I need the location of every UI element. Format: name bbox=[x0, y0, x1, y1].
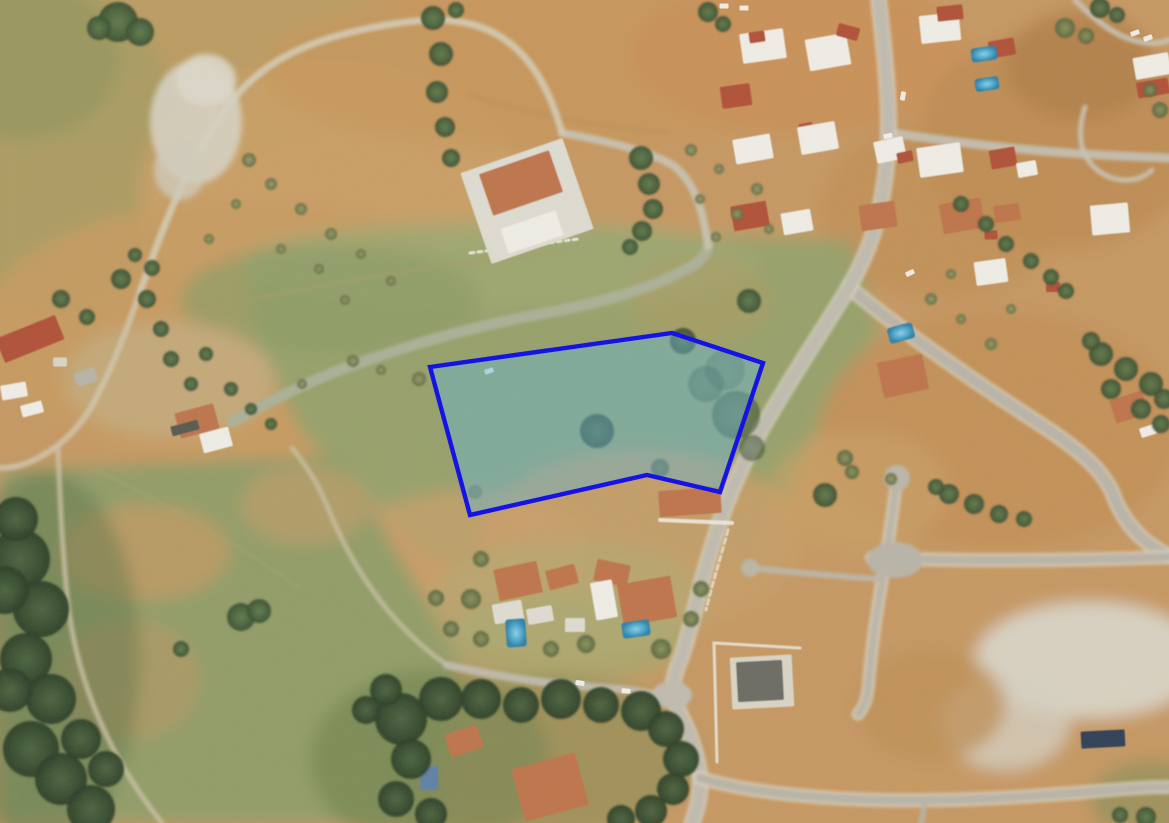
tree bbox=[751, 183, 763, 195]
tree bbox=[295, 203, 307, 215]
tree bbox=[297, 379, 307, 389]
tree bbox=[978, 216, 994, 232]
tree bbox=[52, 290, 70, 308]
tree bbox=[473, 631, 489, 647]
tree bbox=[1109, 7, 1125, 23]
tree bbox=[1078, 28, 1094, 44]
tree bbox=[347, 355, 359, 367]
tree bbox=[632, 221, 652, 241]
tree bbox=[429, 42, 453, 66]
tree bbox=[138, 290, 156, 308]
tree bbox=[276, 244, 286, 254]
tree bbox=[543, 641, 559, 657]
tree bbox=[695, 194, 705, 204]
tree bbox=[813, 483, 837, 507]
building bbox=[53, 358, 67, 367]
tree bbox=[376, 365, 386, 375]
tree bbox=[928, 479, 944, 495]
tree bbox=[184, 377, 198, 391]
vehicle bbox=[740, 6, 749, 11]
tree bbox=[985, 338, 997, 350]
tree bbox=[144, 260, 160, 276]
road-turning-circle bbox=[741, 559, 759, 577]
tree bbox=[340, 295, 350, 305]
tree bbox=[715, 16, 731, 32]
tree bbox=[683, 611, 699, 627]
building bbox=[565, 618, 585, 632]
tree bbox=[1043, 269, 1059, 285]
building bbox=[916, 142, 964, 178]
tree bbox=[426, 81, 448, 103]
tree bbox=[231, 199, 241, 209]
tree bbox=[199, 347, 213, 361]
layer-parcel-overlay bbox=[430, 333, 763, 515]
tree bbox=[964, 494, 984, 514]
tree bbox=[693, 581, 709, 597]
tree bbox=[204, 234, 214, 244]
tree bbox=[685, 144, 697, 156]
tree bbox=[412, 372, 426, 386]
tree bbox=[352, 696, 380, 724]
swimming-pool bbox=[505, 618, 527, 647]
tree bbox=[622, 239, 638, 255]
tree bbox=[638, 173, 660, 195]
tree bbox=[503, 687, 539, 723]
building bbox=[720, 83, 753, 109]
tree bbox=[737, 289, 761, 313]
tree bbox=[583, 687, 619, 723]
tree bbox=[173, 641, 189, 657]
rubble-patch bbox=[154, 140, 206, 200]
rubble-patch bbox=[176, 54, 236, 106]
tree bbox=[541, 679, 581, 719]
aerial-imagery bbox=[0, 0, 1169, 823]
tree bbox=[448, 2, 464, 18]
tree bbox=[87, 16, 111, 40]
tree bbox=[428, 590, 444, 606]
field-patch bbox=[240, 465, 370, 545]
tree bbox=[386, 276, 396, 286]
tree bbox=[925, 293, 937, 305]
tree bbox=[356, 249, 366, 259]
tree bbox=[990, 505, 1008, 523]
tree bbox=[247, 599, 271, 623]
tree bbox=[845, 465, 859, 479]
tree bbox=[224, 382, 238, 396]
tree bbox=[314, 264, 324, 274]
building bbox=[858, 201, 897, 232]
tree bbox=[956, 314, 966, 324]
tree bbox=[1114, 357, 1138, 381]
tree bbox=[461, 679, 501, 719]
tree bbox=[61, 719, 101, 759]
tree bbox=[1006, 304, 1016, 314]
tree bbox=[421, 6, 445, 30]
tree bbox=[325, 228, 337, 240]
tree bbox=[837, 450, 853, 466]
field-patch bbox=[1005, 10, 1155, 120]
tree bbox=[163, 351, 179, 367]
tree bbox=[26, 674, 76, 724]
tree bbox=[128, 248, 142, 262]
tree bbox=[245, 403, 257, 415]
tree bbox=[714, 164, 724, 174]
tree bbox=[265, 178, 277, 190]
tree bbox=[111, 269, 131, 289]
tree bbox=[265, 418, 277, 430]
tree bbox=[1112, 807, 1128, 823]
tree bbox=[953, 196, 969, 212]
tree bbox=[946, 269, 956, 279]
tree bbox=[1016, 511, 1032, 527]
tree bbox=[1082, 332, 1100, 350]
vehicle bbox=[621, 688, 630, 694]
tree bbox=[885, 473, 897, 485]
tree bbox=[473, 551, 489, 567]
tree bbox=[442, 149, 460, 167]
tree bbox=[629, 146, 653, 170]
tree bbox=[153, 321, 169, 337]
building bbox=[936, 4, 963, 22]
tree bbox=[242, 153, 256, 167]
tree bbox=[1131, 399, 1151, 419]
building bbox=[736, 660, 784, 702]
tree bbox=[1143, 83, 1157, 97]
parcel-boundary[interactable] bbox=[430, 333, 763, 515]
tree bbox=[643, 199, 663, 219]
tree bbox=[79, 309, 95, 325]
building bbox=[1081, 729, 1126, 748]
tree bbox=[1055, 18, 1075, 38]
building bbox=[993, 203, 1021, 223]
building bbox=[973, 258, 1008, 286]
vehicle bbox=[720, 4, 729, 9]
tree bbox=[577, 635, 595, 653]
field-patch bbox=[770, 430, 950, 550]
tree bbox=[731, 208, 743, 220]
tree bbox=[711, 232, 721, 242]
road-junction bbox=[867, 542, 923, 578]
tree bbox=[1152, 102, 1168, 118]
tree bbox=[88, 751, 124, 787]
field-patch bbox=[855, 650, 1005, 760]
tree bbox=[378, 781, 414, 817]
tree bbox=[739, 435, 765, 461]
tree bbox=[698, 2, 718, 22]
tree bbox=[1058, 283, 1074, 299]
tree bbox=[1023, 253, 1039, 269]
tree bbox=[651, 639, 671, 659]
satellite-map-view[interactable] bbox=[0, 0, 1169, 823]
tree bbox=[126, 18, 154, 46]
tree bbox=[391, 739, 431, 779]
building bbox=[1090, 202, 1130, 235]
tree bbox=[435, 117, 455, 137]
tree bbox=[419, 677, 463, 721]
tree bbox=[461, 589, 481, 609]
tree bbox=[663, 741, 699, 777]
tree bbox=[764, 224, 774, 234]
tree bbox=[1101, 379, 1121, 399]
tree bbox=[998, 236, 1014, 252]
building bbox=[748, 30, 765, 43]
tree bbox=[443, 621, 459, 637]
